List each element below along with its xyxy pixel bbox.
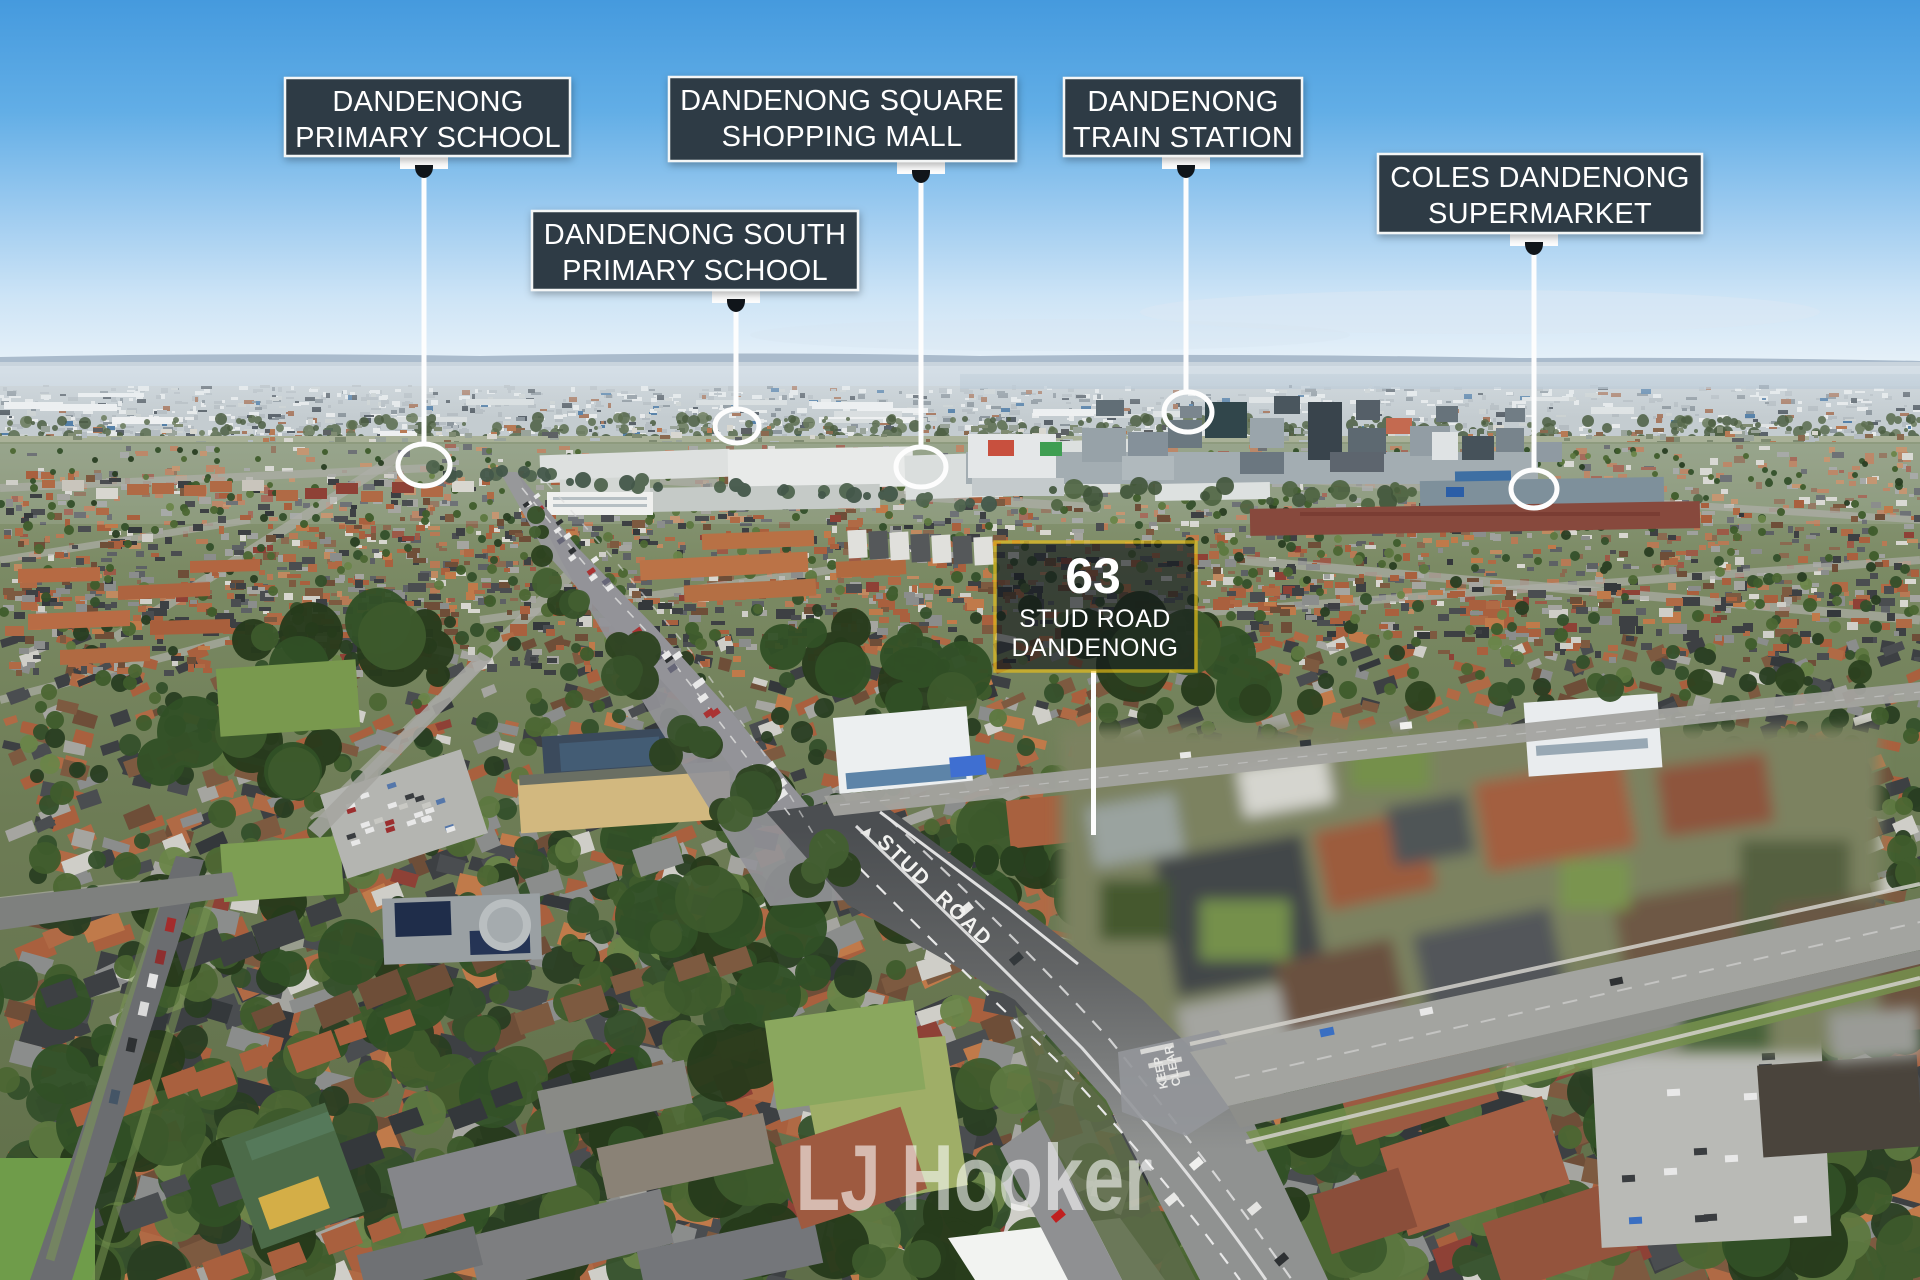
svg-text:SHOPPING MALL: SHOPPING MALL bbox=[722, 121, 963, 153]
svg-text:63: 63 bbox=[1065, 548, 1121, 604]
svg-text:PRIMARY SCHOOL: PRIMARY SCHOOL bbox=[562, 255, 828, 287]
svg-text:PRIMARY SCHOOL: PRIMARY SCHOOL bbox=[295, 122, 561, 154]
svg-text:STUD ROAD: STUD ROAD bbox=[1019, 605, 1171, 633]
svg-text:DANDENONG: DANDENONG bbox=[332, 86, 523, 118]
svg-text:DANDENONG: DANDENONG bbox=[1087, 86, 1278, 118]
svg-text:COLES DANDENONG: COLES DANDENONG bbox=[1390, 162, 1689, 194]
svg-text:SUPERMARKET: SUPERMARKET bbox=[1428, 198, 1652, 230]
svg-text:DANDENONG: DANDENONG bbox=[1011, 634, 1178, 662]
svg-text:DANDENONG SQUARE: DANDENONG SQUARE bbox=[680, 85, 1004, 117]
svg-text:DANDENONG SOUTH: DANDENONG SOUTH bbox=[544, 219, 847, 251]
svg-text:TRAIN STATION: TRAIN STATION bbox=[1073, 122, 1293, 154]
svg-text:LJ Hooker: LJ Hooker bbox=[796, 1125, 1153, 1230]
